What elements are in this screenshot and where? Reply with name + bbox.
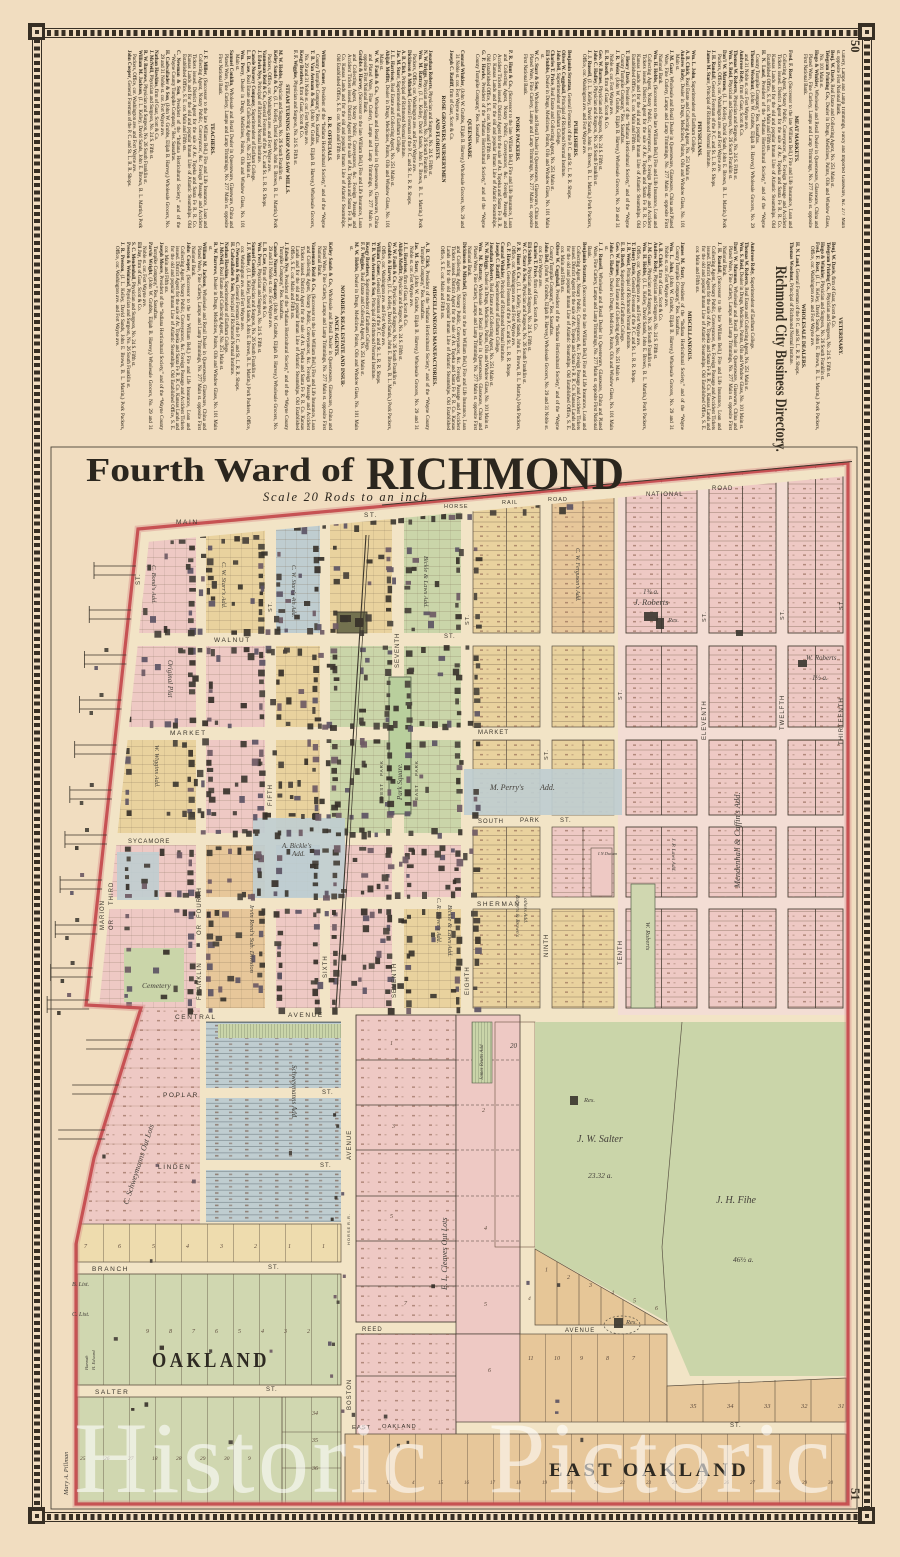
- svg-text:NINTH: NINTH: [544, 934, 550, 957]
- svg-text:J. Roberts: J. Roberts: [634, 597, 669, 607]
- svg-text:E. L. Cleaves Out Lots: E. L. Cleaves Out Lots: [440, 1218, 449, 1291]
- svg-text:Roberts & Brown's: Roberts & Brown's: [514, 894, 520, 937]
- svg-text:OR: OR: [109, 919, 115, 930]
- svg-text:1: 1: [390, 1041, 393, 1047]
- svg-text:HORSE: HORSE: [444, 504, 469, 510]
- svg-text:46½ a.: 46½ a.: [733, 1255, 754, 1264]
- svg-text:Add.: Add.: [291, 850, 305, 858]
- svg-text:J. P. Laws Add.: J. P. Laws Add.: [670, 838, 676, 872]
- svg-text:Irvin Reed's Sub. Division: Irvin Reed's Sub. Division: [248, 904, 255, 973]
- svg-text:BRANCH: BRANCH: [92, 1266, 129, 1273]
- svg-text:MAIN: MAIN: [176, 519, 199, 526]
- svg-text:ST.: ST.: [839, 599, 845, 610]
- svg-text:OR: OR: [197, 924, 203, 935]
- svg-text:NATIONAL: NATIONAL: [646, 492, 684, 498]
- svg-text:Mendenhall & Caffin's Add.: Mendenhall & Caffin's Add.: [732, 792, 742, 889]
- svg-text:Fourth Ward of: Fourth Ward of: [86, 452, 355, 489]
- svg-text:Mary A. Pillman: Mary A. Pillman: [63, 1452, 70, 1496]
- svg-text:OAKLAND: OAKLAND: [152, 1348, 270, 1372]
- svg-text:MARKET: MARKET: [478, 730, 509, 736]
- svg-text:4: 4: [611, 1290, 614, 1297]
- svg-text:2: 2: [482, 1108, 485, 1114]
- svg-text:I.N.Dutton: I.N.Dutton: [597, 851, 618, 856]
- svg-text:C. W. Starr's Add.: C. W. Starr's Add.: [220, 562, 227, 609]
- svg-text:1¾ a.: 1¾ a.: [643, 588, 659, 596]
- svg-text:3: 3: [283, 1329, 287, 1335]
- svg-text:Res.: Res.: [583, 1097, 595, 1104]
- svg-text:A. Bickle's: A. Bickle's: [281, 842, 312, 850]
- svg-text:ST.: ST.: [544, 749, 550, 760]
- svg-text:ST.: ST.: [320, 1163, 332, 1169]
- svg-text:C. Bond's Add.: C. Bond's Add.: [150, 565, 157, 604]
- svg-text:3: 3: [588, 1283, 592, 1289]
- svg-text:8: 8: [606, 1356, 609, 1362]
- svg-text:5: 5: [484, 1302, 487, 1308]
- svg-text:6: 6: [118, 1244, 121, 1250]
- svg-text:MARION: MARION: [100, 900, 106, 930]
- svg-text:ST.: ST.: [465, 614, 471, 625]
- svg-text:FRANKLIN: FRANKLIN: [197, 962, 203, 1000]
- svg-text:SEVENTH: SEVENTH: [392, 963, 398, 998]
- svg-text:8: 8: [169, 1329, 172, 1335]
- svg-text:2: 2: [254, 1244, 257, 1250]
- svg-text:4: 4: [261, 1328, 264, 1335]
- svg-text:MARKET: MARKET: [170, 730, 207, 737]
- svg-text:9: 9: [580, 1356, 583, 1362]
- svg-text:ST.: ST.: [268, 601, 274, 612]
- svg-text:6: 6: [488, 1368, 491, 1374]
- svg-text:5: 5: [152, 1244, 155, 1250]
- svg-text:Schweymanns Add.: Schweymanns Add.: [290, 1065, 298, 1119]
- svg-text:C. W. Starr's 4th Add.: C. W. Starr's 4th Add.: [290, 565, 297, 617]
- svg-text:1½ a.: 1½ a.: [812, 674, 828, 682]
- svg-text:SYCAMORE: SYCAMORE: [128, 839, 170, 845]
- svg-text:Original Plat: Original Plat: [166, 660, 174, 699]
- svg-text:Scale 20 Rods to an inch: Scale 20 Rods to an inch: [263, 490, 427, 504]
- svg-text:ST.: ST.: [444, 634, 456, 640]
- svg-text:Bickle & Laws Add.: Bickle & Laws Add.: [446, 905, 453, 957]
- svg-text:5: 5: [633, 1298, 636, 1304]
- svg-text:AVENUE: AVENUE: [288, 1012, 324, 1019]
- svg-text:AVENUE: AVENUE: [565, 1328, 595, 1334]
- svg-text:6: 6: [655, 1306, 658, 1312]
- svg-text:23.32 a.: 23.32 a.: [588, 1171, 613, 1180]
- svg-text:Res.: Res.: [625, 1319, 637, 1326]
- svg-text:ST.: ST.: [266, 1387, 278, 1393]
- svg-text:PARK: PARK: [520, 818, 540, 824]
- svg-text:20: 20: [510, 1042, 518, 1050]
- svg-text:J. H. Fihe: J. H. Fihe: [716, 1195, 757, 1206]
- svg-text:SALTER: SALTER: [95, 1389, 129, 1396]
- svg-text:CENTRAL: CENTRAL: [175, 1014, 217, 1021]
- svg-text:WEST: WEST: [379, 783, 384, 800]
- svg-text:TWELFTH: TWELFTH: [780, 695, 786, 730]
- svg-text:others Add.: others Add.: [522, 898, 528, 923]
- svg-text:R.R.: R.R.: [346, 1213, 351, 1225]
- svg-text:ST.: ST.: [322, 1090, 334, 1096]
- svg-text:EAST: EAST: [414, 784, 419, 800]
- svg-text:SEVENTH: SEVENTH: [395, 633, 401, 668]
- svg-text:TENTH: TENTH: [618, 940, 624, 965]
- svg-text:LINDEN: LINDEN: [158, 1164, 191, 1171]
- svg-text:SOUTH: SOUTH: [478, 819, 504, 825]
- svg-text:4: 4: [186, 1243, 189, 1250]
- svg-text:THIRD: THIRD: [109, 882, 115, 905]
- svg-text:FIFTH: FIFTH: [268, 784, 274, 806]
- svg-text:C. List.: C. List.: [72, 1312, 90, 1318]
- svg-text:AVENUE: AVENUE: [347, 1130, 353, 1160]
- svg-text:James Reutts Add: James Reutts Add: [480, 1044, 485, 1080]
- svg-text:SIXTH: SIXTH: [323, 955, 329, 978]
- svg-text:REED: REED: [362, 1327, 383, 1333]
- svg-text:ST.: ST.: [780, 609, 786, 620]
- svg-text:W. Roberts: W. Roberts: [806, 654, 837, 662]
- svg-text:Cemetery: Cemetery: [142, 981, 171, 990]
- svg-text:Hannah: Hannah: [84, 1355, 89, 1371]
- svg-text:Park Square.: Park Square.: [396, 763, 404, 801]
- svg-text:J. W. Salter: J. W. Salter: [577, 1134, 623, 1145]
- svg-text:5: 5: [238, 1329, 241, 1335]
- svg-text:W. Roberts: W. Roberts: [644, 922, 651, 951]
- svg-text:2: 2: [307, 1329, 310, 1335]
- svg-text:10: 10: [554, 1356, 560, 1362]
- svg-text:11: 11: [528, 1356, 534, 1362]
- svg-text:WALNUT: WALNUT: [214, 637, 251, 644]
- svg-text:EIGHTH: EIGHTH: [465, 966, 471, 995]
- svg-text:FOURTH: FOURTH: [197, 887, 203, 918]
- svg-text:ROAD: ROAD: [712, 486, 733, 492]
- svg-text:C. W. Ferguson's Add.: C. W. Ferguson's Add.: [574, 548, 580, 601]
- svg-text:5: 5: [390, 1214, 393, 1220]
- svg-text:W. Wiggins Add.: W. Wiggins Add.: [153, 745, 160, 788]
- svg-text:B. List.: B. List.: [72, 1282, 89, 1288]
- svg-text:HORSE: HORSE: [346, 1226, 351, 1245]
- svg-text:H. Edward: H. Edward: [91, 1350, 96, 1371]
- svg-text:3: 3: [391, 1124, 395, 1130]
- svg-text:ST.: ST.: [560, 818, 572, 824]
- svg-text:1: 1: [322, 1244, 325, 1250]
- svg-text:Res.: Res.: [667, 617, 679, 624]
- svg-text:4: 4: [528, 1295, 531, 1302]
- svg-text:ST.: ST.: [618, 689, 624, 700]
- svg-text:2: 2: [567, 1275, 570, 1281]
- svg-text:ST.: ST.: [702, 611, 708, 622]
- svg-text:4: 4: [484, 1225, 487, 1232]
- svg-text:ELEVENTH: ELEVENTH: [702, 700, 708, 740]
- svg-text:9: 9: [146, 1329, 149, 1335]
- svg-text:C. R. Stover's Add.: C. R. Stover's Add.: [435, 898, 441, 943]
- svg-text:THIRTEENTH: THIRTEENTH: [839, 697, 845, 745]
- svg-text:1: 1: [288, 1244, 291, 1250]
- svg-text:POPLAR: POPLAR: [163, 1092, 199, 1099]
- svg-text:Bickle & Laws Add.: Bickle & Laws Add.: [422, 556, 429, 608]
- svg-text:3: 3: [219, 1244, 223, 1250]
- svg-text:1: 1: [545, 1268, 548, 1274]
- svg-text:PARK: PARK: [414, 760, 419, 776]
- svg-text:6: 6: [215, 1329, 218, 1335]
- svg-text:ST.: ST.: [364, 512, 378, 519]
- svg-text:M. Perry's: M. Perry's: [489, 783, 524, 792]
- svg-text:PARK: PARK: [379, 760, 384, 776]
- svg-text:ST.: ST.: [268, 1265, 280, 1271]
- svg-text:Add.: Add.: [539, 783, 555, 792]
- svg-text:ST.: ST.: [136, 573, 142, 585]
- svg-text:RAIL: RAIL: [502, 500, 518, 506]
